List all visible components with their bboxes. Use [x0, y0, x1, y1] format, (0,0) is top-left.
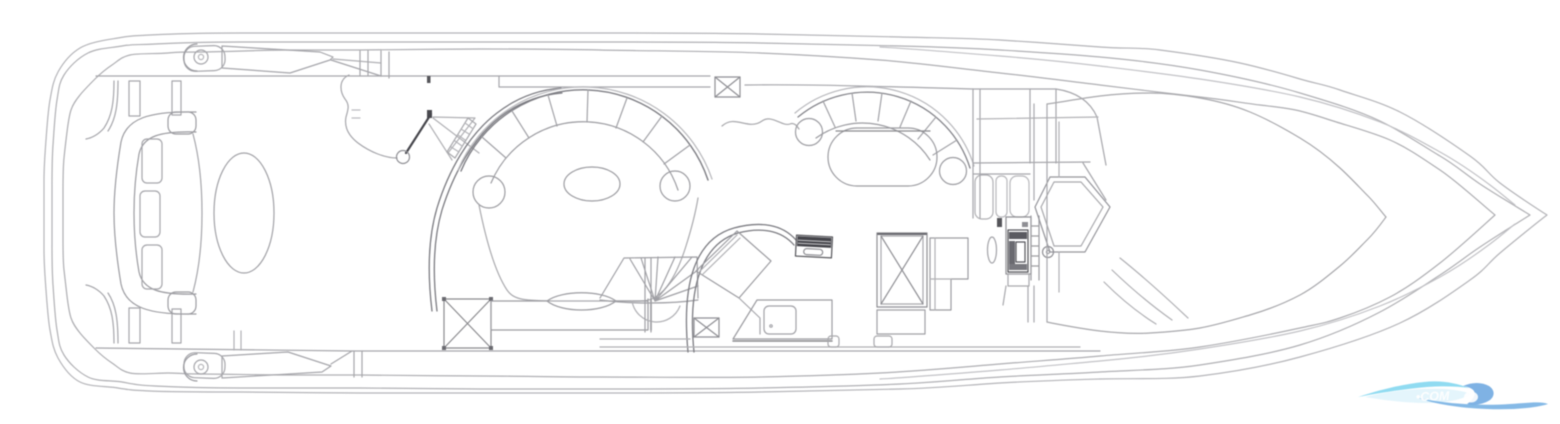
- svg-text:•COM: •COM: [1416, 389, 1451, 404]
